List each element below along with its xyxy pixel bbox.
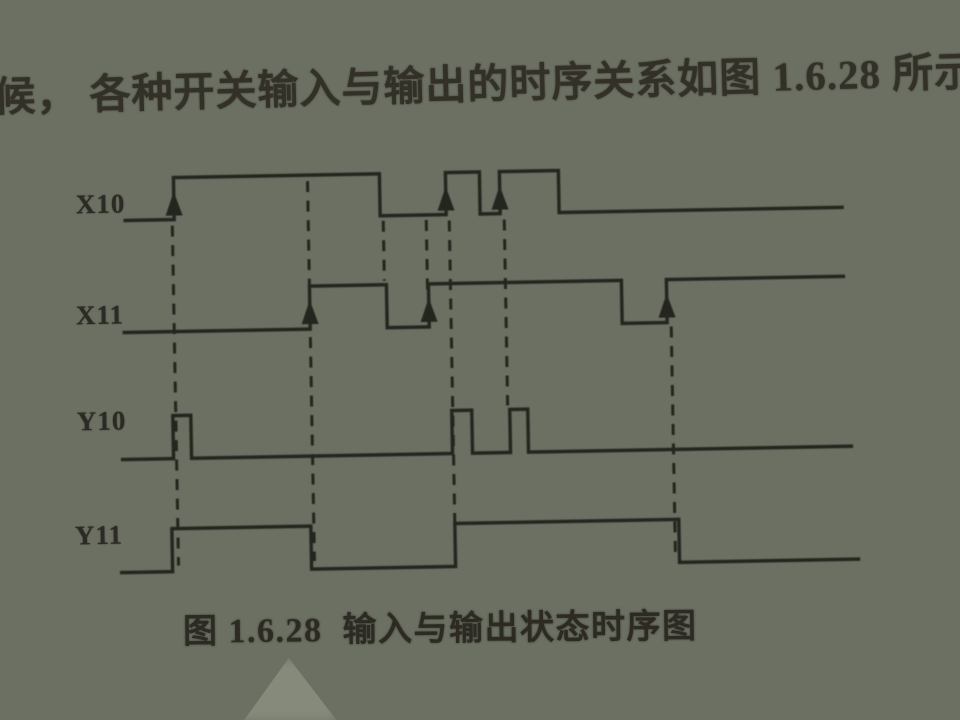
alignment-dashed-line-7 — [671, 326, 675, 556]
alignment-dashed-line-5 — [449, 221, 455, 561]
signal-label-x10: X10 — [76, 188, 126, 220]
rising-edge-arrow-icon — [165, 191, 182, 215]
rising-edge-arrow-icon — [437, 186, 454, 210]
alignment-dashed-line-2 — [308, 181, 315, 561]
alignment-dashed-line-3 — [383, 221, 384, 281]
alignment-dashed-line-1 — [172, 226, 178, 566]
book-page-photo: 候， 各种开关输入与输出的时序关系如图 1.6.28 所示。 X10 X11 Y… — [0, 0, 960, 720]
rising-edge-arrow-icon — [658, 293, 675, 317]
signal-label-y10: Y10 — [77, 405, 127, 437]
figure-caption: 图 1.6.28 输入与输出状态时序图 — [183, 598, 698, 652]
rising-edge-arrow-icon — [491, 185, 508, 209]
waveform-y10 — [122, 403, 852, 459]
waveform-x11 — [123, 276, 844, 332]
rising-edge-arrow-icon — [420, 298, 437, 322]
rising-edge-arrow-icon — [301, 300, 318, 324]
signal-label-y11: Y11 — [75, 520, 124, 552]
alignment-dashed-line-6 — [504, 220, 507, 406]
waveform-y11 — [121, 516, 859, 572]
waveform-x10 — [124, 165, 842, 220]
signal-label-x11: X11 — [76, 300, 125, 332]
